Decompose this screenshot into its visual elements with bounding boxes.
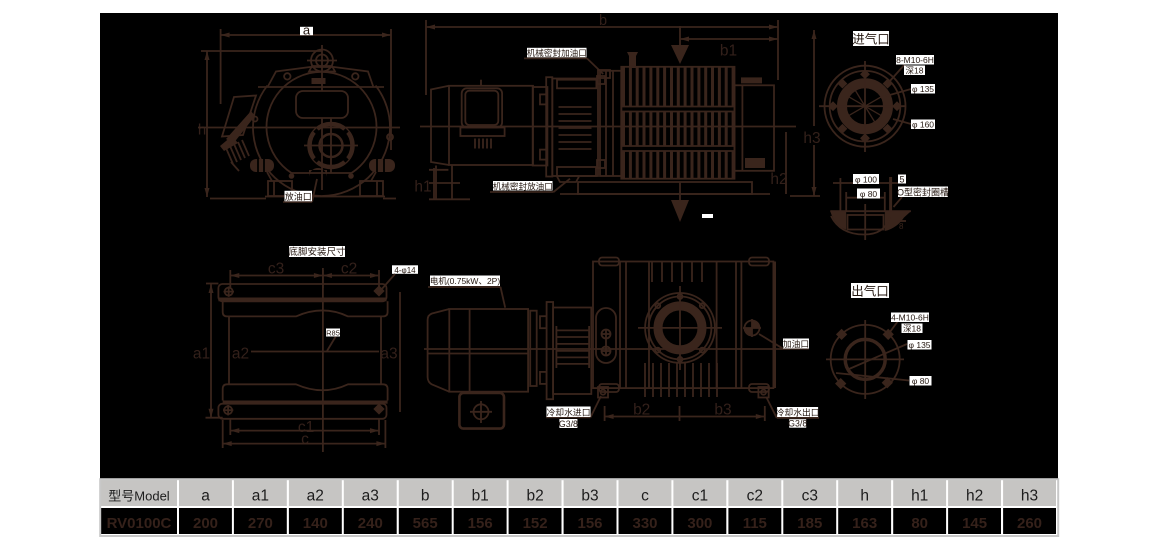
svg-text:c: c [641,488,649,505]
svg-text:4-M10-6H: 4-M10-6H [891,313,929,323]
svg-text:b2: b2 [526,488,543,505]
svg-text:h: h [198,122,206,139]
svg-text:O型密封圈槽: O型密封圈槽 [897,187,949,198]
svg-text:电机(0.75kW、2P): 电机(0.75kW、2P) [430,276,501,286]
svg-text:163: 163 [852,515,877,532]
svg-text:深18: 深18 [903,324,921,334]
svg-text:φ 100: φ 100 [855,175,877,185]
svg-text:h2: h2 [966,488,983,505]
svg-text:机械密封加油口: 机械密封加油口 [527,47,587,58]
svg-text:156: 156 [577,515,602,532]
svg-text:4-φ14: 4-φ14 [394,266,416,275]
svg-text:240: 240 [358,515,383,532]
svg-text:φ 135: φ 135 [912,84,934,94]
svg-text:185: 185 [797,515,822,532]
svg-text:330: 330 [632,515,657,532]
svg-text:8: 8 [899,222,904,231]
svg-text:c3: c3 [802,488,818,505]
svg-text:φ 80: φ 80 [860,189,878,199]
svg-text:冷却水进口: 冷却水进口 [547,407,591,418]
svg-text:8-M10-6H: 8-M10-6H [896,55,934,65]
svg-text:a3: a3 [380,346,397,363]
svg-text:80: 80 [911,515,928,532]
svg-text:b: b [599,13,607,29]
svg-text:放油口: 放油口 [285,191,312,202]
svg-text:φ 135: φ 135 [908,340,930,350]
svg-text:a: a [303,23,311,38]
svg-text:c1: c1 [692,488,708,505]
svg-text:270: 270 [248,515,273,532]
svg-text:a2: a2 [307,488,324,505]
svg-text:c2: c2 [747,488,763,505]
svg-text:h: h [860,488,869,505]
svg-text:冷却水出口: 冷却水出口 [776,407,820,418]
svg-text:h1: h1 [911,488,928,505]
svg-text:152: 152 [523,515,548,532]
svg-text:R85: R85 [326,329,340,338]
svg-text:b1: b1 [720,43,737,60]
svg-text:b2: b2 [633,402,650,419]
svg-text:a: a [201,488,210,505]
svg-text:进气口: 进气口 [852,32,890,47]
svg-text:型号Model: 型号Model [108,489,170,504]
svg-text:h3: h3 [803,130,820,147]
svg-text:G3/8: G3/8 [788,419,807,429]
svg-text:b: b [421,488,430,505]
svg-text:机械密封放油口: 机械密封放油口 [493,180,553,191]
svg-text:a2: a2 [232,346,249,363]
svg-text:深18: 深18 [906,66,924,76]
svg-text:200: 200 [193,515,218,532]
svg-text:φ 160: φ 160 [912,120,934,130]
svg-text:h1: h1 [414,179,431,196]
svg-text:G3/8: G3/8 [559,419,578,429]
svg-text:φ 80: φ 80 [912,376,930,386]
svg-text:b3: b3 [581,488,598,505]
svg-text:出气口: 出气口 [851,284,889,299]
svg-text:加油口: 加油口 [783,338,809,349]
svg-text:h2: h2 [770,171,787,188]
svg-text:a3: a3 [362,488,379,505]
svg-text:a1: a1 [193,346,210,363]
svg-text:5: 5 [899,175,904,185]
svg-text:h3: h3 [1021,488,1038,505]
svg-text:300: 300 [687,515,712,532]
svg-text:底脚安装尺寸: 底脚安装尺寸 [288,246,346,258]
svg-text:565: 565 [413,515,438,532]
svg-text:c: c [301,431,309,448]
svg-text:b3: b3 [714,402,731,419]
svg-text:RV0100C: RV0100C [107,515,172,532]
svg-text:260: 260 [1017,515,1042,532]
svg-text:115: 115 [743,515,767,532]
svg-text:b1: b1 [472,488,489,505]
svg-text:140: 140 [303,515,328,532]
svg-text:a1: a1 [252,488,269,505]
svg-text:145: 145 [962,515,987,532]
svg-text:156: 156 [468,515,493,532]
